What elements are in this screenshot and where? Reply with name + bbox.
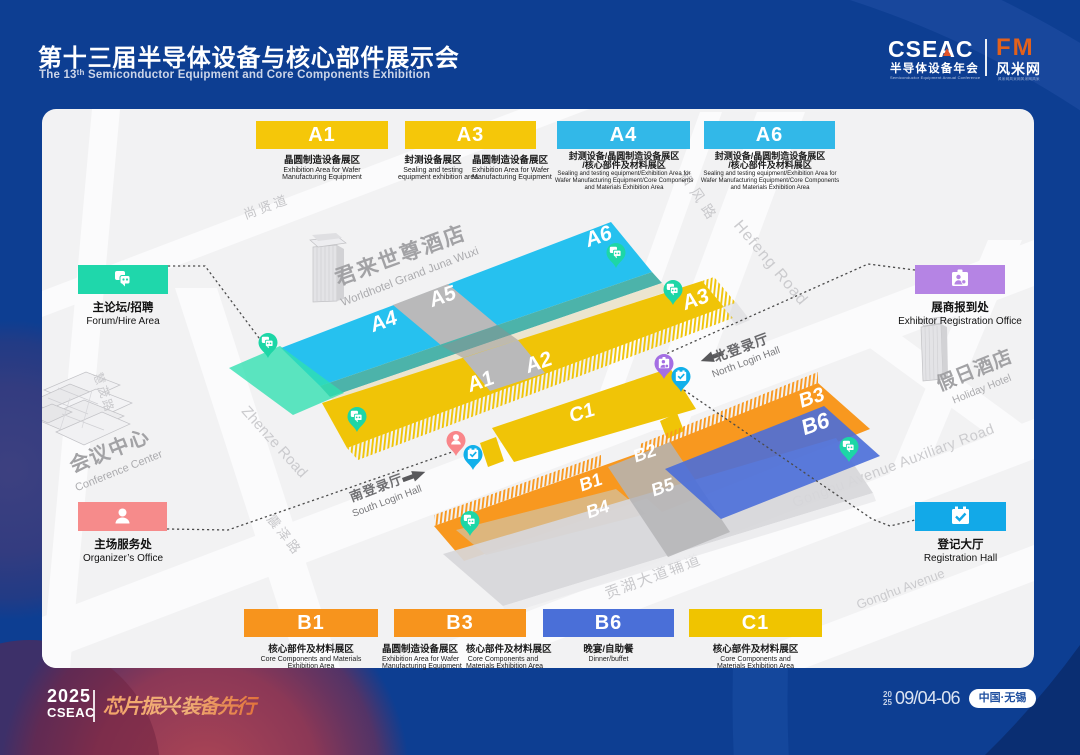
svg-text:芯片振兴·装备先行: 芯片振兴·装备先行 [103,695,259,718]
